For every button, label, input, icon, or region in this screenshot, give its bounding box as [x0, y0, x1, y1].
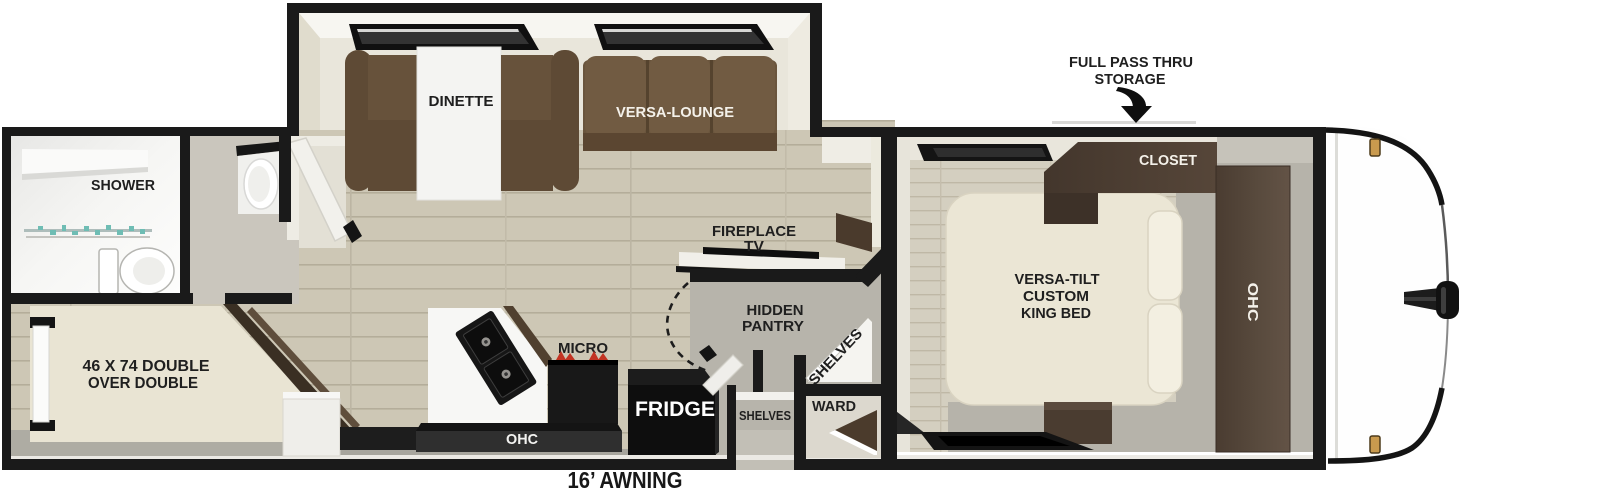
- svg-text:SHOWER: SHOWER: [91, 177, 155, 194]
- svg-text:OHC: OHC: [1244, 283, 1261, 322]
- svg-text:VERSA-TILT: VERSA-TILT: [1015, 271, 1100, 288]
- svg-text:OVER DOUBLE: OVER DOUBLE: [88, 375, 198, 392]
- svg-text:PANTRY: PANTRY: [742, 318, 804, 335]
- svg-text:DINETTE: DINETTE: [429, 93, 494, 110]
- svg-text:VERSA-LOUNGE: VERSA-LOUNGE: [616, 104, 734, 121]
- svg-text:TV: TV: [744, 238, 764, 255]
- svg-text:CLOSET: CLOSET: [1139, 153, 1197, 169]
- svg-text:SHELVES: SHELVES: [739, 408, 791, 423]
- svg-text:FRIDGE: FRIDGE: [635, 398, 715, 421]
- svg-text:CUSTOM: CUSTOM: [1023, 288, 1089, 305]
- svg-text:STORAGE: STORAGE: [1095, 71, 1166, 88]
- svg-text:16’ AWNING: 16’ AWNING: [568, 467, 683, 488]
- svg-text:HIDDEN: HIDDEN: [747, 302, 804, 319]
- svg-text:KING BED: KING BED: [1021, 305, 1091, 322]
- svg-text:FULL PASS THRU: FULL PASS THRU: [1069, 54, 1193, 71]
- svg-text:MICRO: MICRO: [558, 340, 608, 357]
- svg-text:46 X 74 DOUBLE: 46 X 74 DOUBLE: [83, 358, 210, 375]
- svg-text:OHC: OHC: [506, 431, 538, 448]
- svg-text:WARD: WARD: [812, 398, 856, 415]
